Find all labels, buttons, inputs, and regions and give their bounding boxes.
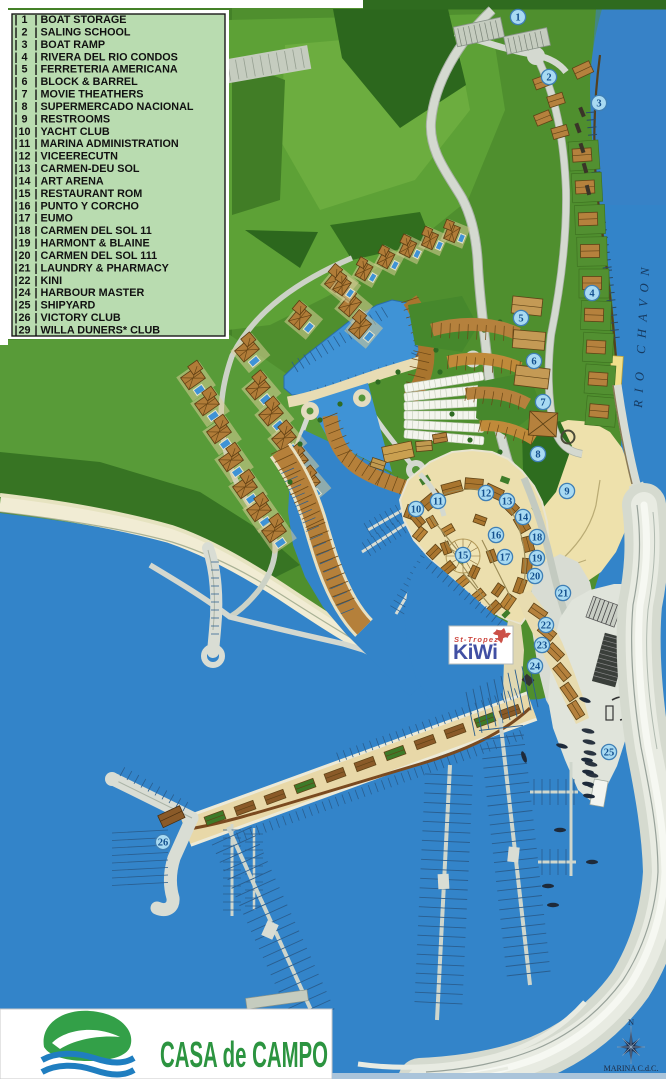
svg-text:13: 13 [502,497,513,508]
svg-text:|15|RESTAURANT ROM: |15|RESTAURANT ROM [15,188,143,200]
svg-text:N: N [628,1017,634,1027]
svg-text:17: 17 [500,553,511,564]
svg-text:8: 8 [535,450,540,461]
svg-text:16: 16 [491,531,502,542]
svg-text:|7|MOVIE THEATHERS: |7|MOVIE THEATHERS [15,89,144,101]
svg-text:4: 4 [589,289,595,300]
svg-text:|29|WILLA DUNERS* CLUB: |29|WILLA DUNERS* CLUB [15,325,161,337]
svg-text:|14|ART ARENA: |14|ART ARENA [15,176,104,188]
svg-text:|19|HARMONT & BLAINE: |19|HARMONT & BLAINE [15,238,150,250]
svg-text:18: 18 [532,533,543,544]
svg-text:|8|SUPERMERCADO NACIONAL: |8|SUPERMERCADO NACIONAL [15,101,194,113]
svg-text:5: 5 [518,314,523,325]
svg-text:22: 22 [541,621,552,632]
svg-text:|24|HARBOUR MASTER: |24|HARBOUR MASTER [15,287,145,299]
svg-text:KiWi: KiWi [453,641,497,664]
svg-text:|12|VICEERECUTN: |12|VICEERECUTN [15,151,119,163]
svg-text:CASA de CAMPO: CASA de CAMPO [160,1034,328,1075]
svg-text:19: 19 [532,554,543,565]
svg-text:21: 21 [558,589,569,600]
svg-text:MARINA C.d.C.: MARINA C.d.C. [604,1064,659,1073]
svg-text:12: 12 [481,489,492,500]
svg-text:23: 23 [537,641,548,652]
svg-text:26: 26 [158,838,169,849]
svg-text:3: 3 [596,99,601,110]
svg-text:|26|VICTORY CLUB: |26|VICTORY CLUB [15,312,121,324]
svg-text:2: 2 [546,73,551,84]
svg-text:25: 25 [604,748,615,759]
svg-text:|20|CARMEN DEL SOL 111: |20|CARMEN DEL SOL 111 [15,250,158,262]
svg-text:7: 7 [540,398,545,409]
svg-text:1: 1 [515,13,520,24]
svg-text:24: 24 [530,662,541,673]
svg-text:9: 9 [564,487,569,498]
svg-text:14: 14 [518,513,529,524]
svg-text:15: 15 [458,551,469,562]
svg-text:|10|YACHT CLUB: |10|YACHT CLUB [15,126,110,138]
svg-text:20: 20 [530,572,541,583]
svg-text:6: 6 [531,357,536,368]
svg-text:10: 10 [411,505,422,516]
svg-text:11: 11 [433,497,443,508]
svg-text:|25|SHIPYARD: |25|SHIPYARD [15,300,96,312]
svg-text:|17|EUMO: |17|EUMO [15,213,73,225]
svg-text:|18|CARMEN DEL SOL 11: |18|CARMEN DEL SOL 11 [15,225,152,237]
